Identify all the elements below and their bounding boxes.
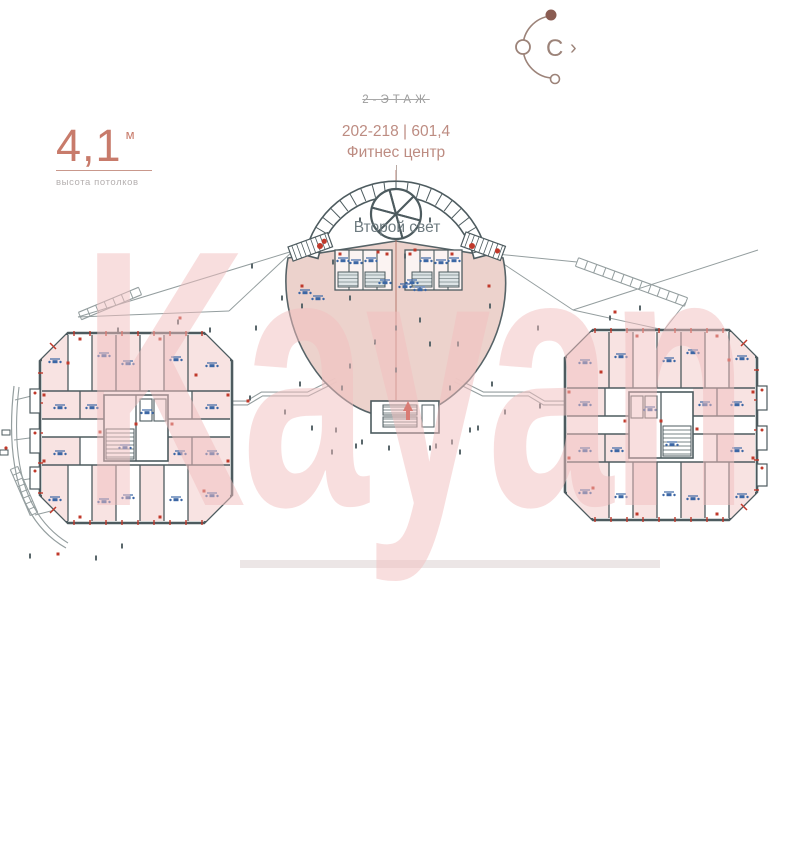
second-light-label: Второй свет [330, 219, 464, 237]
unit-category-label: Фитнес центр [296, 144, 496, 162]
compass-north-indicator: С › [512, 2, 604, 90]
leader-line [396, 165, 397, 180]
units-area-text: 202-218 | 601,4 [296, 123, 496, 141]
floor-label[interactable]: 2-ЭТАЖ [296, 94, 496, 106]
ceiling-height-value: 4,1 [56, 120, 122, 171]
floor-plan-page: { "compass": { "north_label": "С", "chev… [0, 0, 794, 859]
compass-north-letter: С [546, 35, 563, 62]
right-wing[interactable] [565, 328, 767, 522]
ceiling-height-unit: м [126, 127, 135, 142]
ceiling-height-caption: высота потолков [56, 177, 152, 188]
compass-chevron-icon: › [570, 37, 577, 59]
floor-header: 2-ЭТАЖ 202-218 | 601,4 Фитнес центр [296, 94, 496, 180]
left-wing[interactable] [30, 331, 232, 525]
fitness-center-dome[interactable] [286, 170, 506, 451]
ceiling-height-block: 4,1м высота потолков [56, 126, 152, 188]
